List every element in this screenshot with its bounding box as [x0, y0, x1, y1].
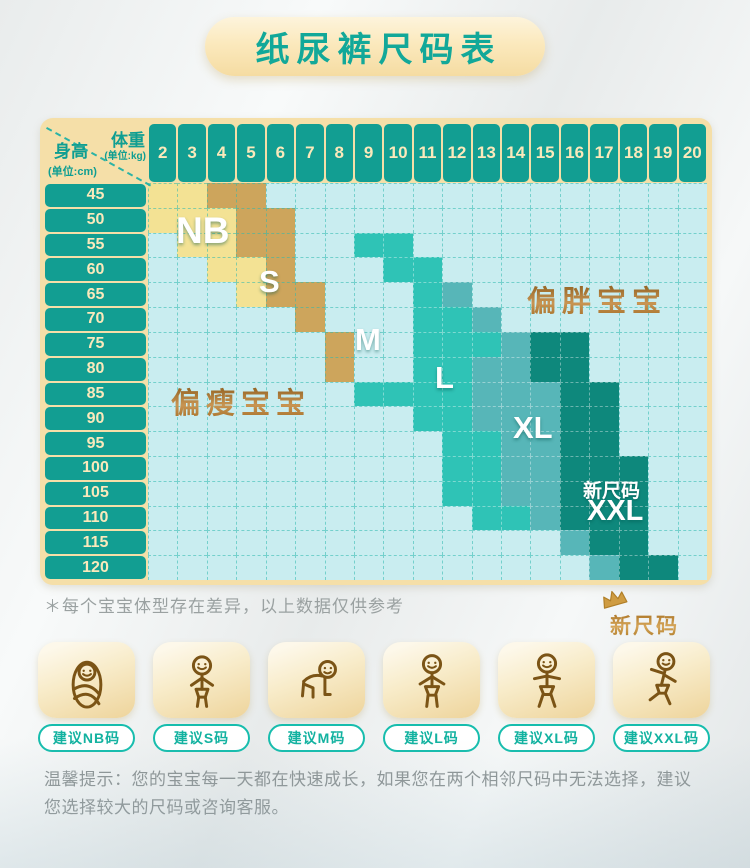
size-cell: [354, 208, 383, 233]
height-label-cell: 105: [45, 482, 146, 505]
size-cell: [560, 257, 589, 282]
size-chart-table: 体重 (单位:kg) 身高 (单位:cm) 234567891011121314…: [40, 118, 712, 585]
size-cell: [560, 506, 589, 531]
size-cell: [678, 406, 707, 431]
size-cell: [589, 307, 618, 332]
size-cell: [177, 307, 206, 332]
size-cell: [177, 431, 206, 456]
size-cell: [530, 357, 559, 382]
size-cell: [383, 257, 412, 282]
size-cell: [560, 481, 589, 506]
page-title: 纸尿裤尺码表: [249, 22, 502, 71]
size-cell: [678, 456, 707, 481]
size-cell: [207, 208, 236, 233]
size-cell: [442, 506, 471, 531]
size-cell: [589, 183, 618, 208]
size-cell: [236, 382, 265, 407]
size-cell: [413, 382, 442, 407]
weight-header-cell: 2: [149, 124, 176, 182]
size-cell: [648, 282, 677, 307]
title-banner: 纸尿裤尺码表: [205, 17, 545, 76]
size-cell: [442, 282, 471, 307]
size-cell: [530, 257, 559, 282]
size-cell: [148, 183, 177, 208]
size-cell: [148, 406, 177, 431]
size-cell: [560, 208, 589, 233]
size-cell: [678, 431, 707, 456]
size-cell: [236, 282, 265, 307]
size-cell: [472, 406, 501, 431]
size-cell: [236, 357, 265, 382]
size-cell: [413, 506, 442, 531]
size-chart: 体重 (单位:kg) 身高 (单位:cm) 234567891011121314…: [40, 118, 712, 585]
size-cell: [678, 208, 707, 233]
size-cell: [530, 233, 559, 258]
size-cell: [648, 431, 677, 456]
size-cell: [589, 282, 618, 307]
size-cell: [266, 257, 295, 282]
size-cell: [472, 357, 501, 382]
size-cell: [325, 382, 354, 407]
size-cell: [295, 233, 324, 258]
size-cell: [530, 456, 559, 481]
swaddled-baby-icon: [54, 647, 120, 713]
size-cell: [648, 257, 677, 282]
size-cell: [383, 183, 412, 208]
size-cell: [530, 481, 559, 506]
size-cell: [266, 555, 295, 580]
size-cell: [295, 555, 324, 580]
size-cell: [236, 208, 265, 233]
size-cell: [501, 456, 530, 481]
size-suggestion-pill: 建议M码: [268, 724, 365, 752]
size-cell: [236, 481, 265, 506]
crawling-baby-icon: [284, 647, 350, 713]
size-cell: [266, 357, 295, 382]
size-cell: [619, 555, 648, 580]
size-cell: [530, 332, 559, 357]
size-cell: [354, 357, 383, 382]
size-cell: [207, 183, 236, 208]
size-cell: [207, 382, 236, 407]
size-cell: [177, 506, 206, 531]
size-cell: [207, 233, 236, 258]
size-cell: [501, 431, 530, 456]
tip-line-1: 温馨提示：您的宝宝每一天都在快速成长，如果您在两个相邻尺码中无法选择，建议: [44, 766, 709, 794]
size-cell: [472, 555, 501, 580]
size-cell: [207, 530, 236, 555]
size-cell: [472, 506, 501, 531]
size-cell: [383, 555, 412, 580]
size-cell: [678, 257, 707, 282]
size-cell: [383, 332, 412, 357]
size-cell: [619, 282, 648, 307]
size-cell: [383, 233, 412, 258]
size-cell: [501, 257, 530, 282]
running-toddler-icon: [629, 647, 695, 713]
size-cell: [501, 406, 530, 431]
size-cell: [442, 257, 471, 282]
size-cell: [266, 406, 295, 431]
size-cell: [354, 233, 383, 258]
size-cell: [325, 481, 354, 506]
size-cell: [589, 208, 618, 233]
size-cell: [148, 456, 177, 481]
size-cell: [266, 282, 295, 307]
size-cell: [177, 456, 206, 481]
recommendation-card: [498, 642, 595, 718]
size-cell: [207, 481, 236, 506]
size-cell: [589, 382, 618, 407]
weight-header-cell: 6: [267, 124, 294, 182]
size-cell: [619, 357, 648, 382]
size-cell: [325, 406, 354, 431]
size-cell: [325, 282, 354, 307]
size-cell: [413, 282, 442, 307]
size-cell: [236, 233, 265, 258]
size-cell: [177, 357, 206, 382]
size-cell: [530, 208, 559, 233]
size-cell: [560, 431, 589, 456]
size-cell: [354, 555, 383, 580]
size-cell: [295, 208, 324, 233]
size-cell: [354, 332, 383, 357]
size-cell: [530, 506, 559, 531]
height-label-cell: 90: [45, 407, 146, 430]
size-cell: [295, 481, 324, 506]
size-cell: [236, 431, 265, 456]
size-cell: [148, 208, 177, 233]
height-label-cell: 55: [45, 234, 146, 257]
size-cell: [589, 456, 618, 481]
walking-toddler-icon: [514, 647, 580, 713]
size-cell: [325, 357, 354, 382]
recommendation-card: [268, 642, 365, 718]
size-cell: [589, 406, 618, 431]
weight-header-cell: 17: [590, 124, 617, 182]
size-cell: [530, 382, 559, 407]
weight-header-cell: 16: [561, 124, 588, 182]
size-cell: [648, 530, 677, 555]
size-cell: [648, 406, 677, 431]
size-cell: [442, 208, 471, 233]
size-cell: [560, 332, 589, 357]
size-cell: [442, 307, 471, 332]
size-cell: [177, 332, 206, 357]
size-cell: [472, 382, 501, 407]
size-cell: [266, 233, 295, 258]
size-cell: [177, 406, 206, 431]
size-cell: [413, 406, 442, 431]
height-axis-label: 身高: [54, 137, 88, 162]
size-cell: [266, 332, 295, 357]
size-cell: [383, 530, 412, 555]
size-cell: [619, 233, 648, 258]
size-cell: [472, 208, 501, 233]
size-cell: [501, 282, 530, 307]
size-cell: [648, 481, 677, 506]
size-cell: [383, 357, 412, 382]
size-cell: [472, 481, 501, 506]
size-cell: [295, 506, 324, 531]
size-cell: [472, 307, 501, 332]
size-cell: [472, 332, 501, 357]
size-cell: [413, 357, 442, 382]
size-cell: [207, 282, 236, 307]
size-cell: [648, 456, 677, 481]
height-label-cell: 70: [45, 308, 146, 331]
size-cell: [501, 307, 530, 332]
weight-header-cell: 18: [620, 124, 647, 182]
size-cell: [501, 183, 530, 208]
size-cell: [472, 456, 501, 481]
size-cell: [619, 456, 648, 481]
size-cell: [442, 431, 471, 456]
size-cell: [589, 506, 618, 531]
size-cell: [442, 530, 471, 555]
size-cell: [619, 208, 648, 233]
size-cell: [648, 307, 677, 332]
height-label-cell: 120: [45, 556, 146, 579]
size-cell: [148, 282, 177, 307]
size-cell: [560, 555, 589, 580]
size-cell: [501, 332, 530, 357]
size-cell: [354, 431, 383, 456]
size-cell: [177, 382, 206, 407]
height-label-cell: 75: [45, 333, 146, 356]
size-cell: [472, 530, 501, 555]
size-cell: [295, 382, 324, 407]
size-cell: [325, 208, 354, 233]
size-cell: [177, 208, 206, 233]
size-cell: [442, 481, 471, 506]
size-cell: [207, 456, 236, 481]
size-cell: [501, 357, 530, 382]
size-cell: [560, 183, 589, 208]
size-cell: [619, 530, 648, 555]
size-cell: [442, 555, 471, 580]
size-cell: [354, 382, 383, 407]
size-cell: [413, 530, 442, 555]
size-cell: [560, 233, 589, 258]
size-cell: [678, 332, 707, 357]
size-cell: [354, 506, 383, 531]
size-cell: [648, 506, 677, 531]
size-suggestion-pill: 建议XXL码: [613, 724, 710, 752]
weight-header-cell: 15: [531, 124, 558, 182]
size-cell: [560, 530, 589, 555]
size-cell: [619, 506, 648, 531]
size-cell: [295, 357, 324, 382]
size-cell: [472, 282, 501, 307]
height-label-cell: 85: [45, 383, 146, 406]
size-cell: [148, 332, 177, 357]
size-cell: [325, 183, 354, 208]
size-cell: [325, 233, 354, 258]
size-cell: [560, 357, 589, 382]
height-label-cell: 110: [45, 507, 146, 530]
size-cell: [619, 406, 648, 431]
size-cell: [295, 282, 324, 307]
size-cell: [354, 307, 383, 332]
size-cell: [678, 382, 707, 407]
size-cell: [325, 307, 354, 332]
size-cell: [148, 307, 177, 332]
recommendation-card: [383, 642, 480, 718]
size-cell: [295, 530, 324, 555]
size-cell: [648, 555, 677, 580]
size-cell: [619, 382, 648, 407]
size-cell: [383, 456, 412, 481]
size-cell: [589, 431, 618, 456]
height-label-cell: 65: [45, 283, 146, 306]
size-cell: [530, 406, 559, 431]
size-cell: [266, 307, 295, 332]
size-cell: [325, 506, 354, 531]
size-cell: [648, 183, 677, 208]
size-cell: [413, 555, 442, 580]
size-cell: [295, 307, 324, 332]
size-cell: [501, 506, 530, 531]
weight-header-cell: 12: [443, 124, 470, 182]
size-cell: [207, 307, 236, 332]
weight-header-cell: 7: [296, 124, 323, 182]
size-cell: [207, 506, 236, 531]
size-cell: [148, 506, 177, 531]
size-cell: [295, 332, 324, 357]
weight-header-cell: 3: [178, 124, 205, 182]
height-label-cell: 45: [45, 184, 146, 207]
size-cell: [678, 481, 707, 506]
size-cell: [354, 282, 383, 307]
weight-axis-unit: (单位:kg): [104, 147, 146, 162]
size-cell: [413, 257, 442, 282]
size-cell: [413, 481, 442, 506]
weight-header-cell: 19: [649, 124, 676, 182]
size-cell: [354, 183, 383, 208]
baby-standing-icon: [169, 647, 235, 713]
size-cell: [472, 233, 501, 258]
height-label-cell: 80: [45, 358, 146, 381]
size-cell: [177, 282, 206, 307]
size-cell: [354, 481, 383, 506]
size-cell: [295, 431, 324, 456]
size-cell: [354, 530, 383, 555]
size-cell: [266, 183, 295, 208]
size-cell: [148, 555, 177, 580]
recommendation-card: [38, 642, 135, 718]
size-cell: [560, 282, 589, 307]
size-cell: [413, 307, 442, 332]
size-cell: [148, 382, 177, 407]
size-cell: [619, 307, 648, 332]
size-cell: [501, 555, 530, 580]
size-cell: [236, 307, 265, 332]
size-cell: [177, 183, 206, 208]
size-cell: [501, 481, 530, 506]
size-cell: [325, 332, 354, 357]
size-cell: [266, 382, 295, 407]
size-cell: [354, 406, 383, 431]
height-label-cell: 115: [45, 531, 146, 554]
weight-header-cell: 20: [679, 124, 706, 182]
size-cell: [413, 208, 442, 233]
size-cell: [442, 332, 471, 357]
size-cell: [295, 183, 324, 208]
size-cell: [236, 555, 265, 580]
size-cell: [472, 431, 501, 456]
weight-header-cell: 4: [208, 124, 235, 182]
size-cell: [295, 456, 324, 481]
size-cell: [383, 282, 412, 307]
size-cell: [530, 183, 559, 208]
size-cell: [325, 456, 354, 481]
size-cell: [648, 332, 677, 357]
size-cell: [413, 332, 442, 357]
size-cell: [442, 233, 471, 258]
tip-line-2: 您选择较大的尺码或咨询客服。: [44, 794, 709, 822]
size-cell: [383, 382, 412, 407]
size-cell: [266, 506, 295, 531]
size-suggestion-pill: 建议L码: [383, 724, 480, 752]
size-cell: [413, 431, 442, 456]
size-cell: [648, 357, 677, 382]
recommendation-card: [613, 642, 710, 718]
size-cell: [530, 307, 559, 332]
size-cell: [589, 555, 618, 580]
size-cell: [678, 307, 707, 332]
size-cell: [148, 233, 177, 258]
size-cell: [383, 431, 412, 456]
size-cell: [266, 208, 295, 233]
size-cell: [619, 257, 648, 282]
size-cell: [619, 481, 648, 506]
size-cell: [442, 382, 471, 407]
size-cell: [560, 382, 589, 407]
size-cell: [295, 406, 324, 431]
size-cell: [530, 282, 559, 307]
weight-header-cell: 9: [355, 124, 382, 182]
height-axis-unit: (单位:cm): [48, 163, 97, 179]
size-cell: [207, 406, 236, 431]
size-cell: [148, 257, 177, 282]
disclaimer-note: ＊每个宝宝体型存在差异，以上数据仅供参考: [44, 592, 404, 617]
size-cell: [589, 257, 618, 282]
size-cell: [589, 530, 618, 555]
size-cell: [207, 431, 236, 456]
size-suggestion-pill: 建议S码: [153, 724, 250, 752]
weight-header-cell: 8: [326, 124, 353, 182]
size-cell: [177, 233, 206, 258]
size-cell: [207, 257, 236, 282]
size-cell: [472, 257, 501, 282]
size-cell: [207, 357, 236, 382]
size-cell: [383, 506, 412, 531]
size-cell: [413, 233, 442, 258]
size-cell: [678, 357, 707, 382]
size-cell: [619, 431, 648, 456]
size-cell: [560, 307, 589, 332]
size-cell: [678, 506, 707, 531]
height-label-cell: 50: [45, 209, 146, 232]
size-cell: [501, 233, 530, 258]
size-cell: [177, 481, 206, 506]
size-cell: [148, 481, 177, 506]
size-cell: [678, 555, 707, 580]
size-cell: [383, 307, 412, 332]
recommendation-card: [153, 642, 250, 718]
size-cell: [325, 530, 354, 555]
